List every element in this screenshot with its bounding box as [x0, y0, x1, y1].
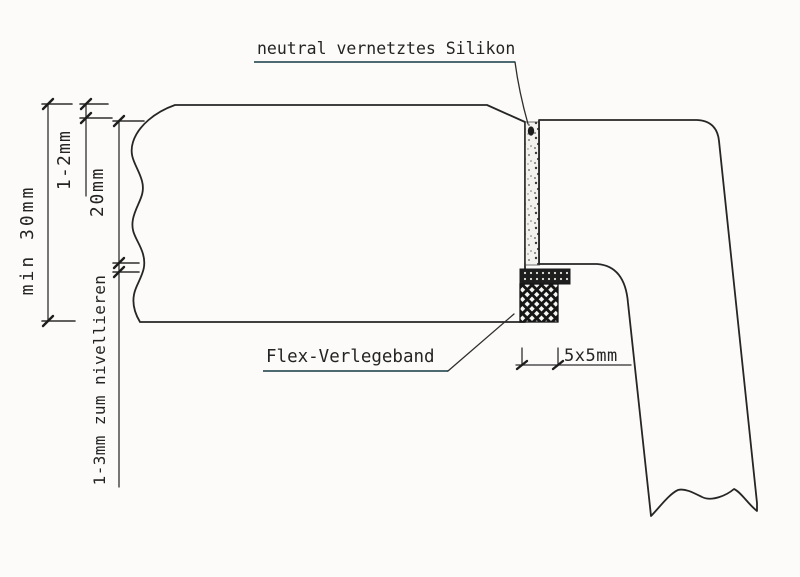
silicone-label: neutral vernetztes Silikon: [257, 39, 515, 58]
dim-label-min30: min 30mm: [17, 185, 38, 296]
technical-drawing-page: neutral vernetztes Silikon Flex-Verlegeb…: [0, 0, 800, 577]
dim-label-1-2mm: 1-2mm: [54, 130, 75, 190]
installation-section-diagram: neutral vernetztes Silikon Flex-Verlegeb…: [0, 0, 800, 577]
dim-leveling-gap: 1-3mm zum nivellieren: [90, 275, 109, 486]
dim-label-20mm: 20mm: [87, 167, 108, 217]
flex-tape-label: Flex-Verlegeband: [266, 347, 435, 367]
adhesive-strip: [520, 269, 570, 284]
silicone-joint: [526, 122, 540, 265]
silicone-fill-dot: [528, 126, 534, 135]
flex-tape-block: [520, 284, 558, 322]
dim-label-leveling: 1-3mm zum nivellieren: [90, 275, 109, 486]
dim-label-5x5mm: 5x5mm: [564, 346, 618, 366]
